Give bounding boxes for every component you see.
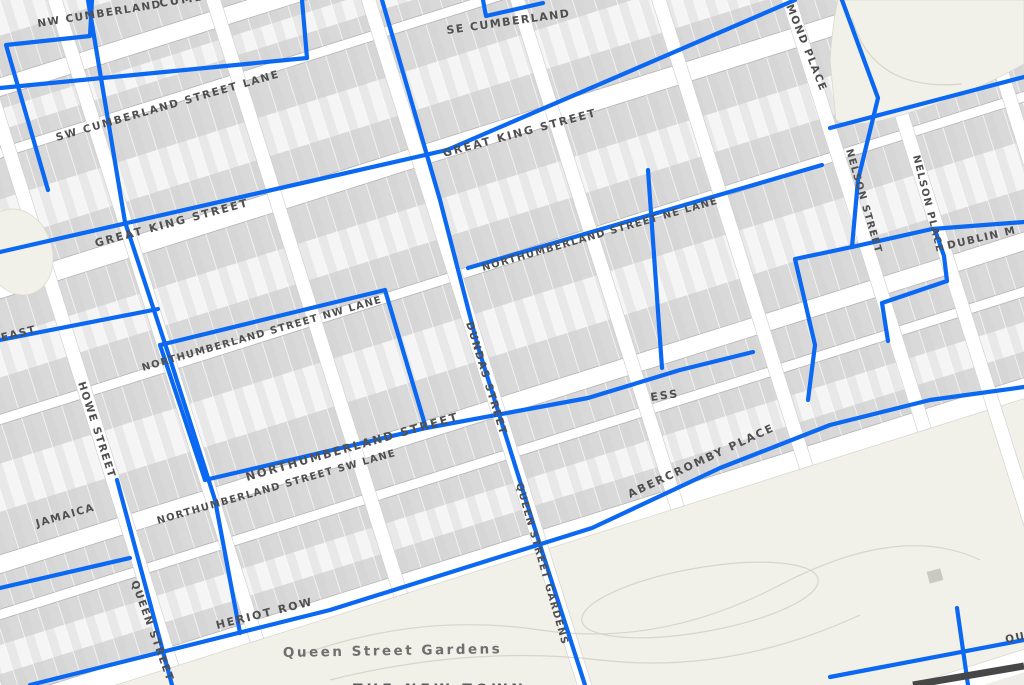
map-svg: CUMBERLAND STREETNW CUMBERLANDSW CUMBERL… [0, 0, 1024, 685]
map-canvas[interactable]: CUMBERLAND STREETNW CUMBERLANDSW CUMBERL… [0, 0, 1024, 685]
